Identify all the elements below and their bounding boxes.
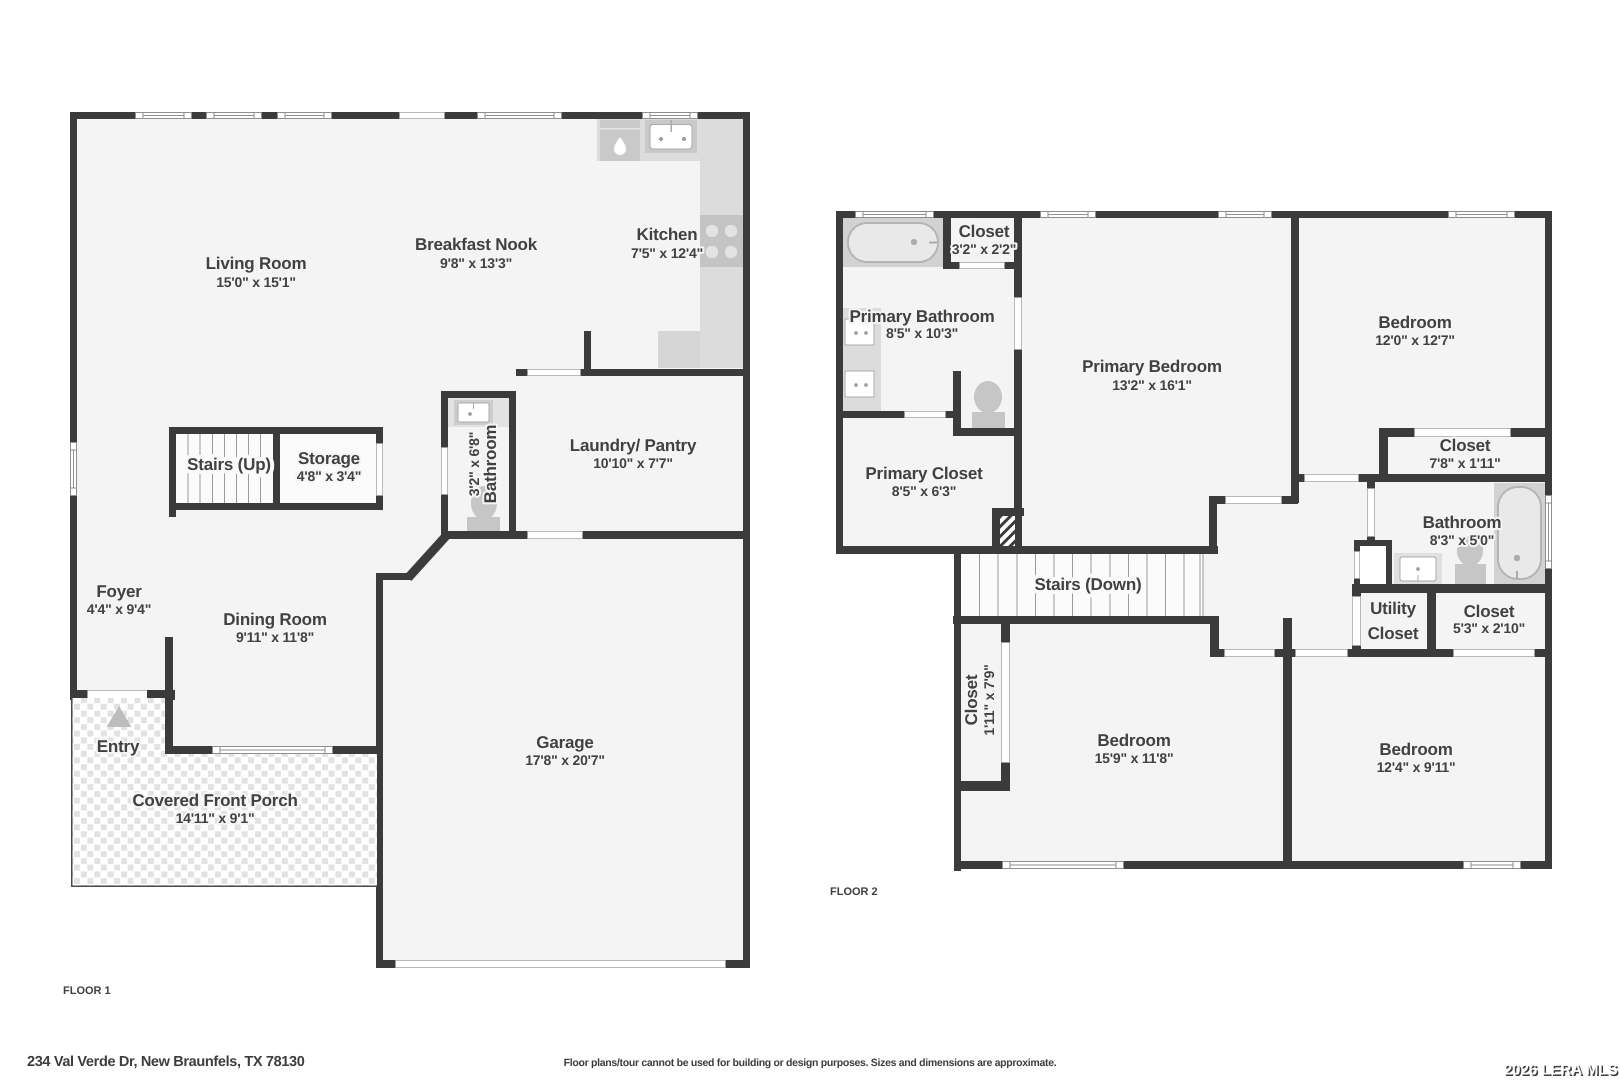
- svg-text:1'11" x 7'9": 1'11" x 7'9": [981, 664, 997, 735]
- svg-text:Garage: Garage: [536, 733, 593, 752]
- svg-text:234 Val Verde Dr, New Braunfel: 234 Val Verde Dr, New Braunfels, TX 7813…: [27, 1054, 305, 1070]
- svg-text:17'8" x 20'7": 17'8" x 20'7": [525, 752, 605, 768]
- svg-text:15'9" x 11'8": 15'9" x 11'8": [1095, 750, 1174, 766]
- svg-text:Foyer: Foyer: [96, 582, 142, 601]
- svg-text:Closet: Closet: [1440, 436, 1491, 455]
- svg-text:7'8" x 1'11": 7'8" x 1'11": [1429, 455, 1500, 471]
- svg-text:Primary Bedroom: Primary Bedroom: [1082, 357, 1222, 376]
- svg-text:Dining Room: Dining Room: [223, 610, 327, 629]
- svg-text:10'10" x 7'7": 10'10" x 7'7": [593, 455, 673, 471]
- svg-text:5'3" x 2'10": 5'3" x 2'10": [1453, 620, 1525, 636]
- svg-text:Primary Closet: Primary Closet: [865, 464, 983, 483]
- svg-text:12'4" x 9'11": 12'4" x 9'11": [1377, 759, 1456, 775]
- svg-text:FLOOR 1: FLOOR 1: [63, 985, 111, 997]
- svg-text:9'11" x 11'8": 9'11" x 11'8": [236, 629, 314, 645]
- svg-text:Storage: Storage: [298, 449, 360, 468]
- svg-text:12'0" x 12'7": 12'0" x 12'7": [1375, 332, 1455, 348]
- svg-text:Breakfast Nook: Breakfast Nook: [415, 235, 538, 254]
- svg-text:9'8" x 13'3": 9'8" x 13'3": [440, 255, 512, 271]
- svg-text:Laundry/ Pantry: Laundry/ Pantry: [570, 436, 697, 455]
- svg-text:3'2" x 2'2": 3'2" x 2'2": [952, 241, 1016, 257]
- svg-text:Closet: Closet: [1368, 624, 1419, 643]
- svg-text:Stairs (Down): Stairs (Down): [1035, 575, 1142, 594]
- svg-text:4'8" x 3'4": 4'8" x 3'4": [297, 468, 361, 484]
- svg-text:Bedroom: Bedroom: [1379, 740, 1452, 759]
- svg-text:8'5" x 10'3": 8'5" x 10'3": [886, 325, 958, 341]
- svg-text:Bathroom: Bathroom: [481, 425, 500, 504]
- svg-text:Kitchen: Kitchen: [637, 225, 698, 244]
- svg-text:8'3" x 5'0": 8'3" x 5'0": [1430, 532, 1494, 548]
- svg-text:14'11" x 9'1": 14'11" x 9'1": [176, 810, 255, 826]
- svg-text:Living Room: Living Room: [206, 254, 307, 273]
- svg-text:4'4" x 9'4": 4'4" x 9'4": [87, 601, 151, 617]
- svg-text:Primary Bathroom: Primary Bathroom: [849, 307, 994, 326]
- svg-text:7'5" x 12'4": 7'5" x 12'4": [631, 245, 703, 261]
- svg-text:Stairs (Up): Stairs (Up): [187, 455, 271, 474]
- svg-text:8'5" x 6'3": 8'5" x 6'3": [892, 483, 956, 499]
- svg-text:Bathroom: Bathroom: [1423, 513, 1502, 532]
- svg-text:13'2" x 16'1": 13'2" x 16'1": [1112, 377, 1192, 393]
- svg-text:2026 LERA MLS: 2026 LERA MLS: [1504, 1062, 1618, 1079]
- svg-text:Covered Front Porch: Covered Front Porch: [132, 791, 297, 810]
- svg-text:3'2" x 6'8": 3'2" x 6'8": [466, 432, 482, 496]
- svg-text:Closet: Closet: [1464, 602, 1515, 621]
- svg-text:Closet: Closet: [959, 222, 1010, 241]
- svg-text:Bedroom: Bedroom: [1097, 731, 1170, 750]
- svg-text:Bedroom: Bedroom: [1378, 313, 1451, 332]
- svg-text:Entry: Entry: [97, 737, 140, 756]
- svg-text:FLOOR 2: FLOOR 2: [830, 886, 878, 898]
- svg-text:15'0" x 15'1": 15'0" x 15'1": [216, 274, 296, 290]
- svg-text:Utility: Utility: [1370, 599, 1417, 618]
- svg-text:Closet: Closet: [962, 674, 981, 725]
- svg-text:Floor plans/tour cannot be use: Floor plans/tour cannot be used for buil…: [564, 1057, 1057, 1069]
